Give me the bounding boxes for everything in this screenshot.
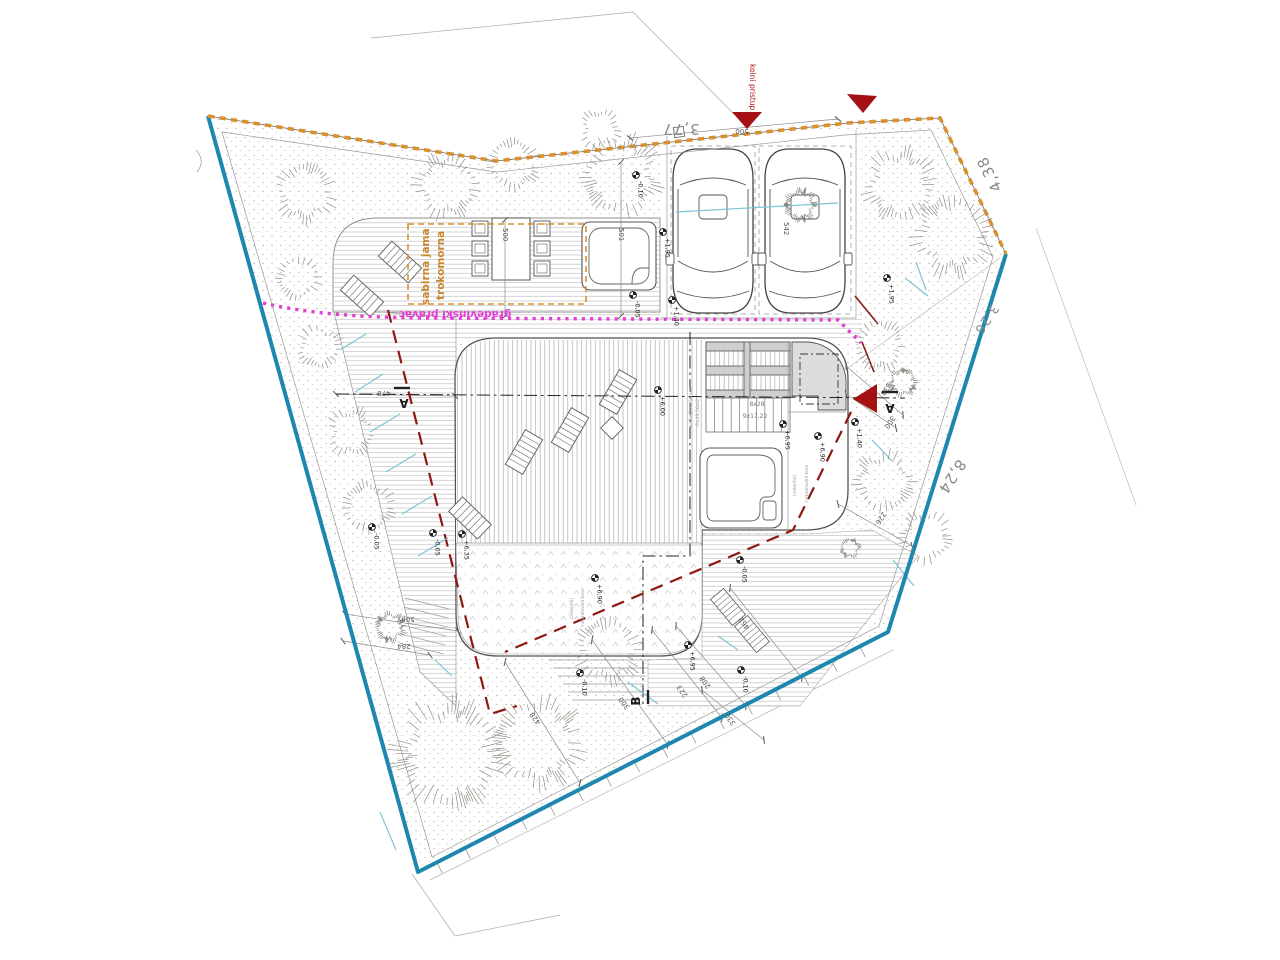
green-roof-lower [456,545,702,654]
elevation-label: +1,95 [664,238,672,258]
green-roof-strip-2: (zelenilo) [792,475,798,496]
dining-table [472,218,550,280]
car-2 [758,149,852,313]
tree-stroke [522,145,525,149]
elevation-marker-icon [633,172,640,179]
site-plan-drawing: +6,00+6,95+6,95+6,90+6,90+6,35-0,05-0,05… [0,0,1280,960]
green-roof-strip-1: neprohodni krov [804,464,810,502]
elevation-label: -0,10 [581,679,589,696]
elevation-label: -0,05 [373,533,381,550]
boundary-tick [635,763,640,772]
elevation-marker-icon [738,667,745,674]
terrace-label-1: ozelenjena terasa [688,387,694,428]
dim-500-mid: 500 [501,228,509,241]
boundary-tick [494,835,499,844]
elevation-label: +6,95 [689,651,697,671]
tree-stroke [615,141,616,147]
dim-tick [764,736,765,744]
boundary-tick [748,706,753,715]
elevation-label: -0,05 [434,539,442,556]
tree-stroke [517,140,518,145]
green-roof-low-2: (zelenilo) [569,598,575,619]
chair-seat [472,261,488,276]
elevation-label: +6,00 [659,396,667,416]
dim-478: 478 [377,389,390,397]
tree-stroke [612,127,617,128]
pergola-grid [706,342,790,398]
terrace-label-2: P=49,56m2 [695,399,701,426]
dim-tick [676,622,677,630]
tree-stroke [500,144,502,147]
tree-stroke [523,147,529,153]
tree-stroke [614,135,621,138]
stairs-label-2: 9x17,22 [743,413,768,420]
roof-jacuzzi [700,448,782,528]
boundary-tick [663,749,668,758]
elevation-marker-icon [669,297,676,304]
dim-top: 3,77 [662,120,699,138]
elevation-marker-icon [660,229,667,236]
chair-seat [472,241,488,256]
tree-stroke [610,115,616,120]
chair [534,261,550,276]
elevation-label: -0,05 [634,301,642,318]
tree-stroke [582,137,588,140]
tree-stroke [583,132,587,133]
elevation-marker-icon [884,275,891,282]
dim-top-right: 4,38 [973,153,1006,195]
access-arrow-2-icon [847,94,877,113]
elevation-marker-icon [577,670,584,677]
tree-stroke [944,546,948,548]
tree-stroke [489,155,498,158]
boundary-tick [551,807,556,816]
tree-stroke [528,148,536,154]
dim-500-top: 500 [735,127,748,135]
tree-stroke [492,150,497,154]
dim-tick [903,411,904,419]
tree-stroke [941,528,947,530]
tree-stroke [589,110,593,116]
elevation-marker-icon [430,530,437,537]
boundary-tick [579,792,584,801]
elevation-label: -0,05 [741,566,749,583]
boundary-tick [466,850,471,859]
boundary-tick [692,735,697,744]
chair-seat [534,261,550,276]
tree-stroke [520,143,521,146]
boundary-tick [833,663,838,672]
dim-284: 284 [397,642,411,650]
elevation-marker-icon [592,575,599,582]
elevation-label: -0,10 [742,676,750,693]
tree-stroke [511,137,512,147]
elevation-marker-icon [737,557,744,564]
tree-stroke [507,139,509,148]
tree-stroke [944,542,952,544]
chair [472,241,488,256]
tree-stroke [584,112,589,118]
tree-stroke [614,131,621,132]
elevation-label: +6,95 [784,430,792,450]
septic-label-1: trokomorna [435,231,447,300]
tree-stroke [929,554,931,564]
tree-stroke [497,147,500,150]
utility-mark [380,812,396,850]
tree-stroke [594,112,596,117]
section-b-label: B [629,696,643,705]
tree-stroke [583,124,586,125]
dim-542: 542 [782,222,790,235]
elevation-label: +6,35 [463,540,471,560]
boundary-tick [861,648,866,657]
elevation-marker-icon [655,387,662,394]
tree-stroke [582,118,587,121]
elevation-marker-icon [630,292,637,299]
elevation-label: -0,10 [637,181,645,198]
green-roof-low-1: neprohodni krov [580,588,586,626]
elevation-marker-icon [369,524,376,531]
boundary-tick [522,821,527,830]
car-1 [666,149,760,313]
tree-stroke [503,141,505,147]
access-road-label: kolni pristup [748,64,757,110]
boundary-tick [438,864,443,873]
chair [534,241,550,256]
tree-stroke [604,141,605,144]
dim-501: 501 [617,228,625,241]
roof-terrace-hatch [456,340,702,543]
tree-stroke [612,138,616,141]
elevation-label: +1,40 [673,306,681,326]
tree-stroke [941,520,949,526]
tree-stroke [938,513,944,521]
elevation-marker-icon [685,642,692,649]
tree-stroke [585,141,590,147]
chair-seat [534,241,550,256]
elevation-label: +1,95 [888,284,896,304]
elevation-label: +1,40 [856,428,864,448]
tree-stroke [937,551,940,555]
tree-stroke [841,544,842,545]
elevation-marker-icon [815,433,822,440]
tree-stroke [924,557,925,566]
elevation-marker-icon [780,421,787,428]
chair [472,261,488,276]
elevation-marker-icon [852,419,859,426]
tree-stroke [605,110,607,115]
building-line-label: građevinski pravac [399,308,512,320]
tree-stroke [943,539,953,540]
section-a-right: A [885,401,895,415]
tree-stroke [933,551,936,558]
tree-stroke [608,110,612,116]
elevation-label: +6,90 [596,584,604,604]
tree-stroke [929,515,930,519]
stairs-label-1: 8x28 [749,401,764,408]
tree-stroke [598,138,605,150]
section-a-left: A [399,396,409,410]
septic-label-2: sabirna jama [420,228,432,305]
tree-stroke [934,512,937,519]
elevation-marker-icon [459,531,466,538]
tree-stroke [942,549,945,551]
elevation-label: +6,90 [819,442,827,462]
dim-500-left: 500 [401,615,414,623]
boundary-tick [607,778,612,787]
dim-tick [846,362,847,370]
tree-stroke [611,121,616,124]
